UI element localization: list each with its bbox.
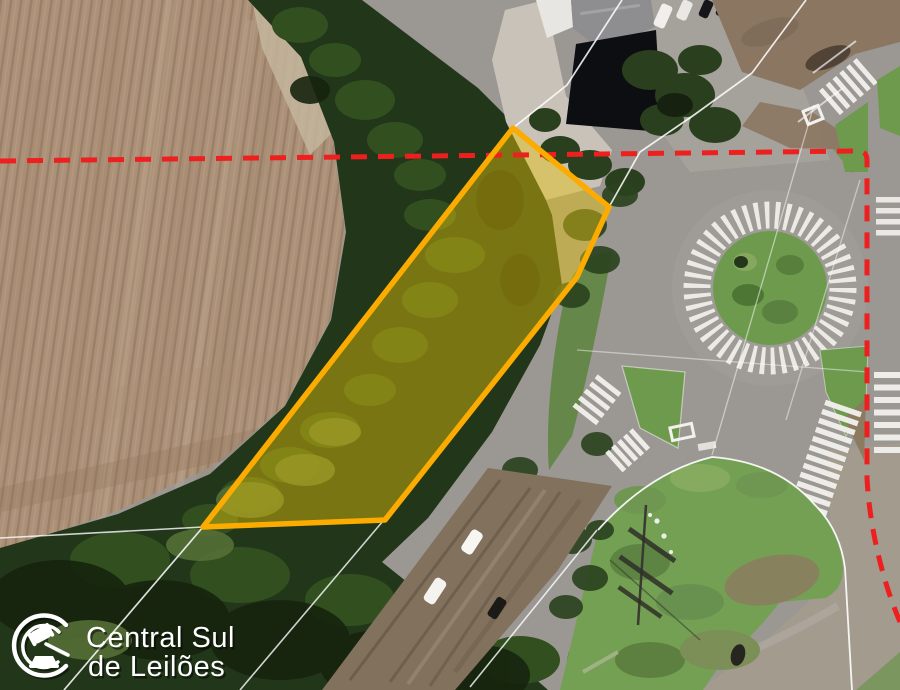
watermark-line1: Central Sul xyxy=(86,622,235,654)
satellite-map-screenshot: Central Sul de Leilões Central Sul de Le… xyxy=(0,0,900,690)
watermark-line2: de Leilões xyxy=(88,651,225,683)
roundabout-green-island xyxy=(713,231,827,345)
satellite-map-canvas: Central Sul de Leilões Central Sul de Le… xyxy=(0,0,900,690)
